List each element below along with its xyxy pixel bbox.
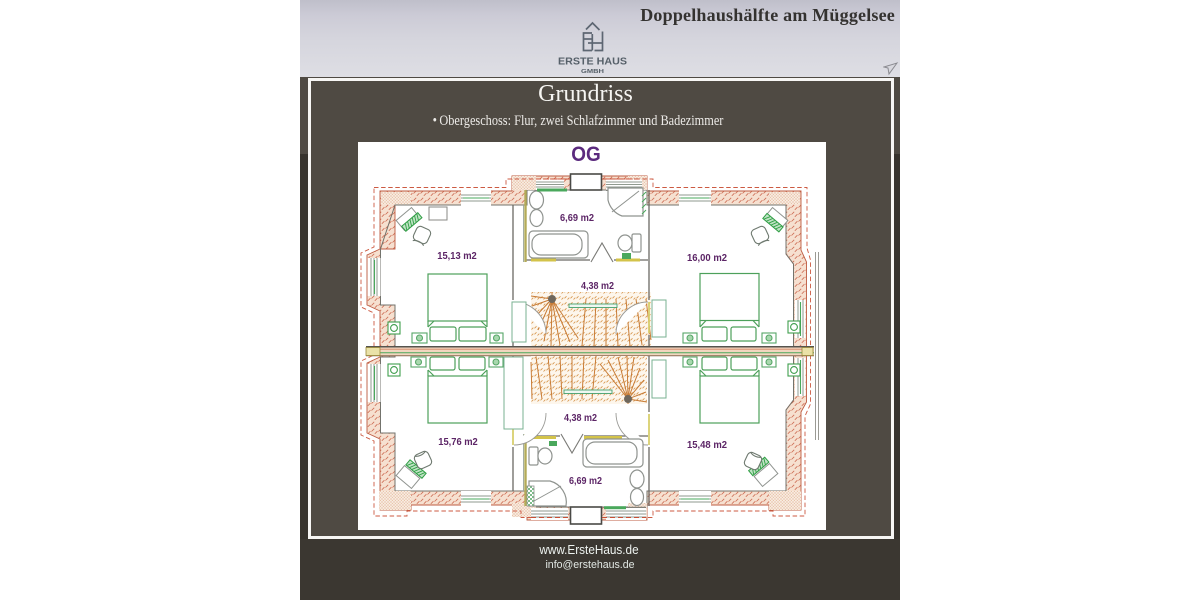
svg-text:15,13 m2: 15,13 m2: [437, 250, 477, 262]
svg-text:4,38 m2: 4,38 m2: [564, 412, 597, 424]
svg-text:6,69 m2: 6,69 m2: [560, 212, 594, 224]
svg-text:ERSTE HAUS: ERSTE HAUS: [558, 56, 627, 68]
svg-text:15,76 m2: 15,76 m2: [438, 436, 478, 448]
svg-text:OG: OG: [571, 142, 601, 166]
svg-text:GMBH: GMBH: [581, 69, 604, 75]
svg-text:6,69 m2: 6,69 m2: [569, 475, 602, 487]
svg-text:15,48 m2: 15,48 m2: [687, 439, 727, 451]
svg-text:4,38 m2: 4,38 m2: [581, 280, 614, 292]
svg-text:16,00 m2: 16,00 m2: [687, 252, 727, 264]
